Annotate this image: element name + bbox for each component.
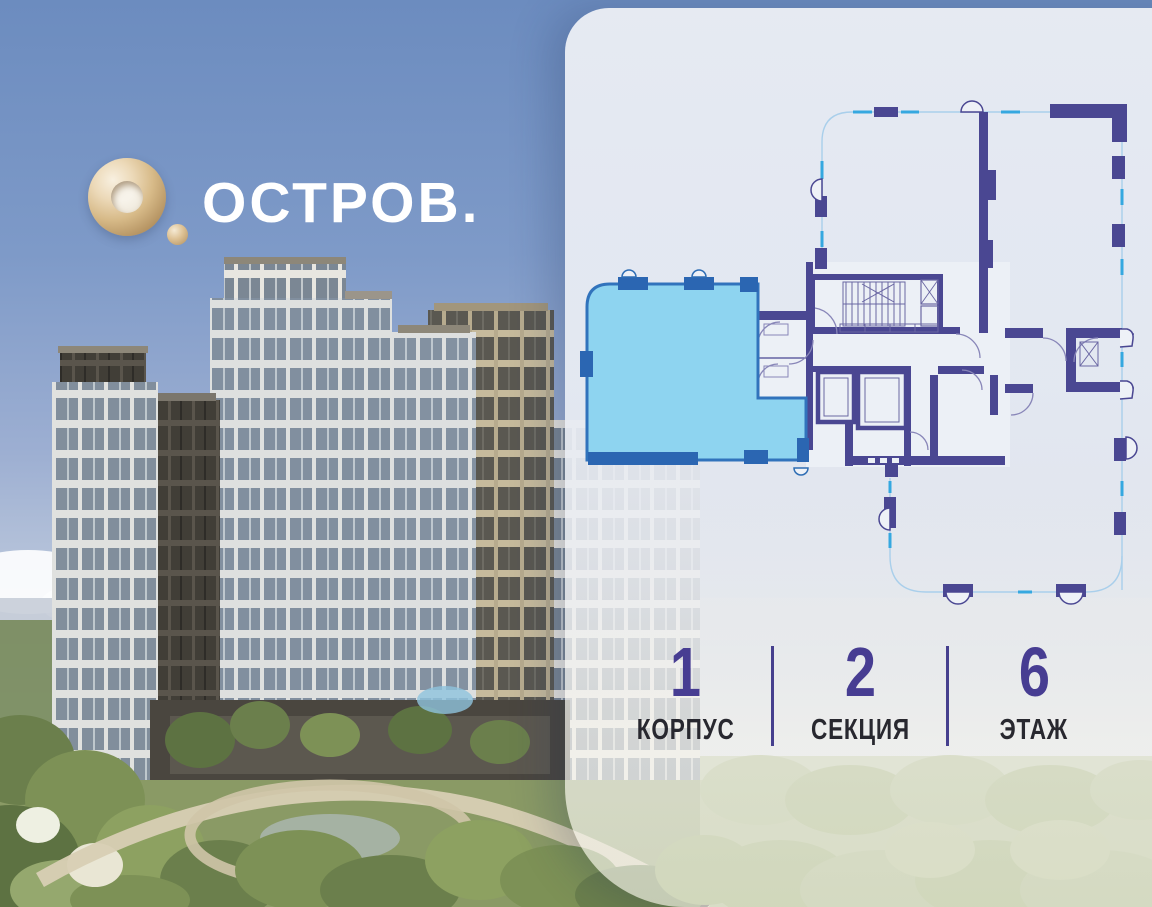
location-info: 1 КОРПУС 2 СЕКЦИЯ 6 ЭТАЖ [600, 642, 1120, 747]
brand-logo[interactable]: ОСТРОВ. [88, 158, 508, 248]
brand-logo-dot-icon [167, 224, 188, 245]
info-corpus: 1 КОРПУС [600, 642, 771, 747]
corpus-number: 1 [670, 642, 701, 702]
floor-number: 6 [1019, 642, 1050, 702]
floor-label: ЭТАЖ [1000, 714, 1068, 747]
brand-name: ОСТРОВ. [202, 158, 481, 248]
brand-logo-icon [88, 158, 166, 236]
section-number: 2 [844, 642, 875, 702]
page: ОСТРОВ. [0, 0, 1152, 907]
section-label: СЕКЦИЯ [811, 714, 910, 747]
corpus-label: КОРПУС [637, 714, 735, 747]
info-floor: 6 ЭТАЖ [949, 642, 1120, 747]
info-section: 2 СЕКЦИЯ [774, 642, 945, 747]
